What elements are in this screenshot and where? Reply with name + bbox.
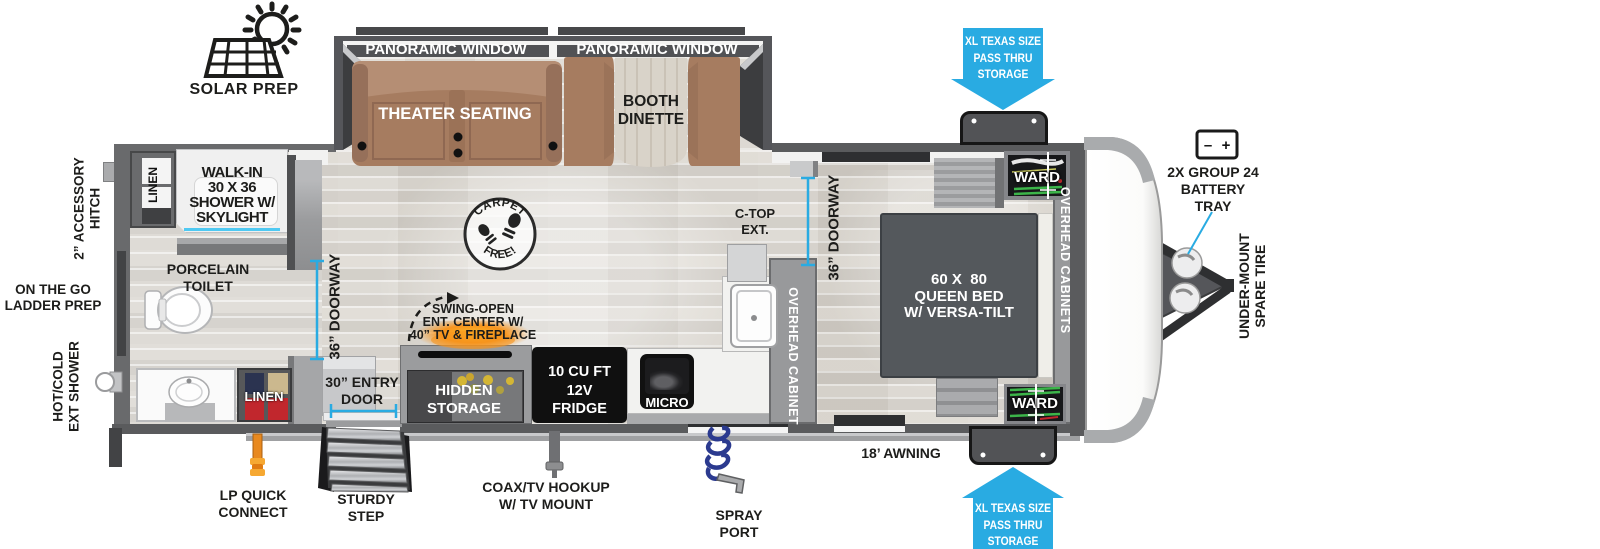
svg-text:BOOTH: BOOTH	[623, 93, 679, 110]
svg-text:–: –	[1204, 137, 1212, 154]
svg-text:THEATER SEATING: THEATER SEATING	[378, 105, 531, 123]
svg-text:DINETTE: DINETTE	[618, 111, 684, 128]
svg-text:+: +	[1222, 137, 1231, 154]
